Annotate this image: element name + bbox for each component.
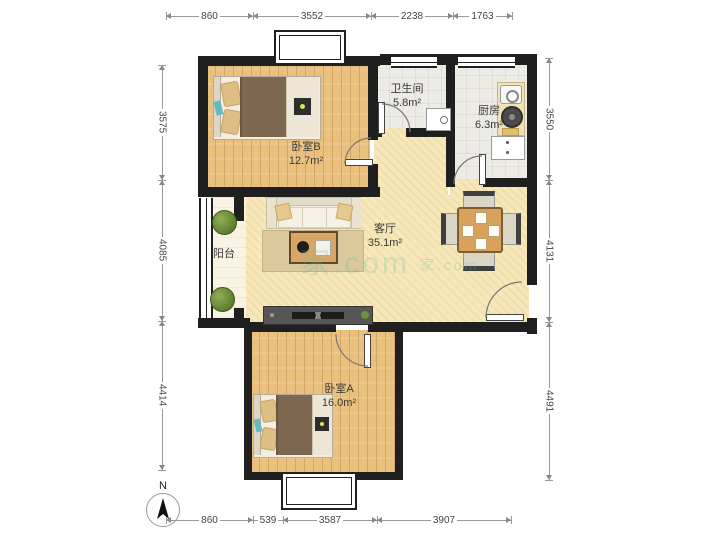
dim-top-4: 1763 — [453, 9, 512, 23]
wall — [352, 472, 403, 480]
dim-left-3: 4414 — [155, 321, 169, 470]
lamp-dot — [320, 422, 324, 426]
dim-tick — [158, 470, 166, 471]
bed-bedroom-b — [213, 76, 321, 140]
lamp-dot — [300, 104, 305, 109]
label-kitchen: 厨房 6.3m² — [466, 104, 512, 133]
kitchen-drawers — [491, 136, 525, 160]
dim-value: 4085 — [157, 237, 168, 263]
room-name: 客厅 — [355, 222, 415, 236]
plate — [462, 225, 474, 237]
dim-top-3: 2238 — [371, 9, 453, 23]
dim-value: 4414 — [157, 382, 168, 408]
dim-value: 3587 — [317, 514, 343, 527]
label-balcony: 阳台 — [205, 247, 243, 261]
dim-top-1: 860 — [166, 9, 253, 23]
plate — [488, 225, 500, 237]
room-area: 5.8m² — [380, 96, 434, 110]
room-area: 16.0m² — [306, 396, 372, 410]
room-name: 厨房 — [466, 104, 512, 118]
room-area: 35.1m² — [355, 236, 415, 250]
room-name: 阳台 — [205, 247, 243, 261]
wall — [446, 178, 455, 187]
dim-value: 3550 — [544, 106, 555, 132]
duvet — [240, 77, 288, 137]
wall — [395, 322, 403, 480]
dining-table — [457, 207, 503, 253]
plant — [212, 210, 237, 235]
tv-cabinet — [263, 306, 373, 325]
plate — [475, 238, 487, 250]
dim-tick — [371, 12, 372, 20]
dim-bottom-4: 3907 — [377, 513, 511, 527]
sink-bowl — [506, 90, 519, 103]
dim-tick — [545, 180, 553, 181]
dim-right-2: 4131 — [542, 180, 556, 322]
dim-value: 4131 — [544, 238, 555, 264]
bay-window-bottom — [281, 472, 357, 510]
door-leaf-entry — [486, 314, 524, 321]
watermark: 家.com — [420, 255, 479, 275]
sofa — [266, 197, 361, 229]
north-arrow-icon — [147, 494, 179, 526]
room-name: 卧室B — [276, 140, 336, 154]
dim-bottom-2: 539 — [253, 513, 283, 527]
sofa-pillow — [275, 203, 293, 222]
plate — [475, 212, 487, 224]
pillow — [220, 81, 242, 108]
wall — [527, 54, 537, 285]
dim-tick — [377, 516, 378, 524]
dim-bottom-3: 3587 — [283, 513, 377, 527]
dim-value: 539 — [258, 514, 279, 527]
wall — [403, 322, 537, 332]
floor-plan: 家.com 家.com 卧室B 12.7m² 卫生间 5.8m² 厨房 6.3m… — [0, 0, 720, 540]
dim-tick — [283, 516, 284, 524]
knob — [270, 313, 274, 317]
label-bedroom-a: 卧室A 16.0m² — [306, 382, 372, 411]
dim-left-1: 3575 — [155, 65, 169, 180]
dim-tick — [158, 180, 166, 181]
label-bedroom-b: 卧室B 12.7m² — [276, 140, 336, 169]
dim-value: 860 — [199, 10, 220, 23]
bed-tray — [315, 417, 329, 431]
bathroom-window — [391, 55, 437, 68]
compass-circle — [146, 493, 180, 527]
bay-window-top — [274, 30, 346, 65]
room-name: 卫生间 — [380, 82, 434, 96]
dim-tick — [158, 65, 166, 66]
compass: N — [146, 480, 180, 527]
wall — [198, 187, 380, 197]
washer-door — [440, 116, 448, 124]
small-plant — [361, 311, 369, 319]
dim-tick — [545, 58, 553, 59]
kitchen-window — [458, 55, 515, 68]
sofa-cushion — [302, 207, 327, 228]
dim-value: 3552 — [299, 10, 325, 23]
wall — [198, 318, 250, 328]
dim-value: 860 — [199, 514, 220, 527]
dim-value: 2238 — [399, 10, 425, 23]
dim-tick — [166, 12, 167, 20]
dim-left-2: 4085 — [155, 180, 169, 321]
dim-tick — [453, 12, 454, 20]
wall — [244, 322, 252, 480]
label-bathroom: 卫生间 5.8m² — [380, 82, 434, 111]
dim-value: 1763 — [469, 10, 495, 23]
dim-tick — [511, 516, 512, 524]
door-leaf-bedroom-a — [364, 334, 371, 368]
dim-tick — [158, 321, 166, 322]
label-living-room: 客厅 35.1m² — [355, 222, 415, 251]
dim-tick — [512, 12, 513, 20]
room-area: 12.7m² — [276, 154, 336, 168]
room-name: 卧室A — [306, 382, 372, 396]
door-leaf-kitchen — [479, 154, 486, 185]
tv — [292, 312, 344, 319]
plant — [210, 287, 235, 312]
dim-tick — [253, 516, 254, 524]
dim-right-3: 4491 — [542, 322, 556, 480]
dim-tick — [545, 322, 553, 323]
wall — [198, 56, 208, 197]
dim-tick — [253, 12, 254, 20]
drawer-handle — [506, 141, 509, 144]
kitchen-sink — [500, 85, 522, 104]
washer — [426, 108, 451, 131]
north-label: N — [146, 480, 180, 492]
dim-right-1: 3550 — [542, 58, 556, 180]
drawer-handle — [506, 151, 509, 154]
dim-tick — [545, 480, 553, 481]
door-leaf-bedroom-b — [345, 159, 373, 166]
hallway-floor — [374, 128, 448, 198]
room-area: 6.3m² — [466, 118, 512, 132]
dim-value: 3907 — [431, 514, 457, 527]
dim-value: 4491 — [544, 388, 555, 414]
bed-tray — [294, 98, 311, 115]
dim-top-2: 3552 — [253, 9, 371, 23]
dim-value: 3575 — [157, 109, 168, 135]
dining-chair — [501, 213, 521, 245]
wall — [244, 472, 284, 480]
